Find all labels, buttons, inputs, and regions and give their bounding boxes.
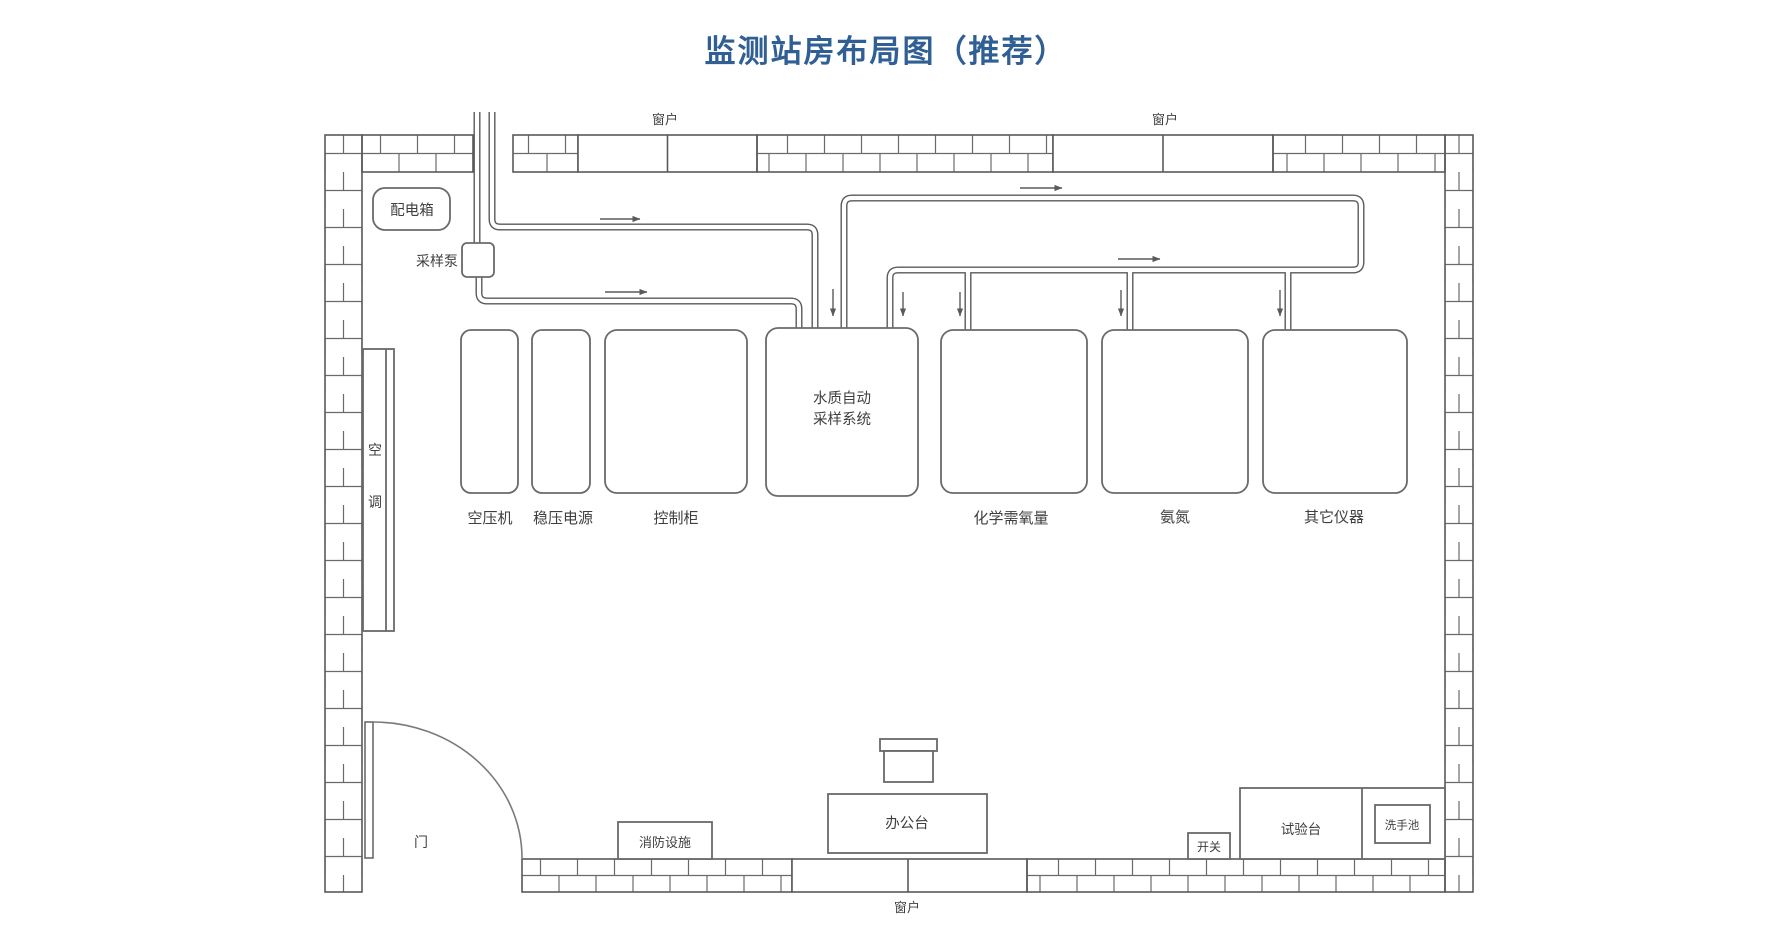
pipe-distribution-loop [844,198,1361,330]
ammonia-analyzer-box [1102,330,1248,493]
door-label: 门 [414,834,428,850]
control-cabinet-label: 控制柜 [653,510,698,527]
wall-top-brick-3 [757,135,1053,172]
equipment [363,188,1445,859]
chair-backrest [880,739,937,751]
door [365,722,522,858]
sampling-pump-label: 采样泵 [416,253,458,269]
door-leaf [365,722,373,858]
other-instruments-box [1263,330,1407,493]
flow-arrows [600,188,1280,316]
distribution-box-label: 配电箱 [390,202,434,219]
wall-bottom-brick-1 [522,859,792,892]
voltage-regulator-label: 稳压电源 [533,510,593,527]
wall-top-brick-2 [513,135,578,172]
ammonia-analyzer-label: 氨氮 [1160,509,1190,526]
wall-top-brick-1 [362,135,473,172]
wall-top-brick-4 [1273,135,1445,172]
switch-label: 开关 [1197,840,1221,854]
window-label-top-2: 窗户 [1152,112,1178,127]
water-auto-sampler-label-line2: 采样系统 [813,411,871,428]
chair-seat [884,751,933,782]
test-bench-label: 试验台 [1281,822,1322,837]
air-compressor-label: 空压机 [467,510,512,527]
wash-sink-label: 洗手池 [1385,818,1420,832]
cod-analyzer-box [941,330,1087,493]
office-desk-label: 办公台 [885,815,929,832]
air-conditioner-label-char2: 调 [368,494,382,510]
air-conditioner [363,349,394,631]
sampling-pump [462,243,494,277]
window-opening-bottom [792,859,1027,892]
control-cabinet-box [605,330,747,493]
window-label-top-1: 窗户 [652,112,678,127]
voltage-regulator-box [532,330,590,493]
cod-analyzer-label: 化学需氧量 [973,510,1048,527]
air-compressor-box [461,330,518,493]
other-instruments-label: 其它仪器 [1304,508,1364,526]
fire-equipment-label: 消防设施 [639,835,691,850]
air-conditioner-label-char1: 空 [368,442,382,458]
floor-plan: 窗户 窗户 窗户 配电箱 采样泵 空 调 空压机 稳压电源 控制柜 水质自动 采… [0,0,1772,943]
window-label-bottom: 窗户 [894,900,920,915]
wall-right [1445,135,1473,892]
water-auto-sampler-label-line1: 水质自动 [813,390,871,407]
door-swing-arc [373,722,522,858]
wall-left [325,135,362,892]
wall-bottom-brick-2 [1027,859,1445,892]
